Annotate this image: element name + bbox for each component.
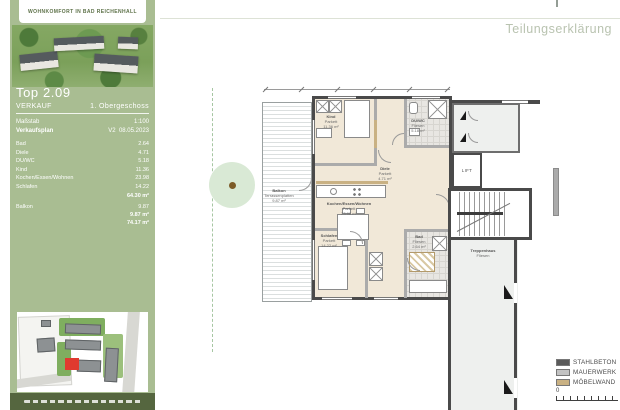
vestibule-area [452, 103, 520, 153]
door-gap [514, 283, 517, 303]
bed-symbol [318, 246, 348, 290]
floor-plan: Balkon Terrassenplatten 9.87 m² [0, 0, 620, 410]
wall-segment [315, 163, 377, 166]
staircase [448, 188, 532, 240]
scalebar-ruler [556, 396, 618, 401]
furniture-wall-segment [316, 181, 388, 184]
lift-label: LIFT [462, 168, 472, 173]
bathtub-symbol [409, 280, 447, 293]
door-swing [468, 133, 478, 143]
furniture-wall-segment [374, 120, 377, 148]
shower-symbol [428, 100, 447, 119]
legend-swatch-mauerwerk [556, 369, 570, 376]
lift-room: LIFT [452, 153, 482, 188]
door-leaf-symbol [460, 133, 466, 142]
wall-segment [404, 145, 449, 148]
legend-swatch-moebelwand [556, 379, 570, 386]
legend-swatch-stahlbeton [556, 359, 570, 366]
neighbor-wall-segment [553, 168, 559, 216]
legend-item-stahlbeton: STAHLBETON [556, 358, 620, 367]
property-boundary-dashed-line [212, 88, 213, 352]
desk-symbol [316, 128, 332, 138]
room-label-wohnen: Kochen/Essen/Wohnen Parkett 23.98 m² [326, 201, 372, 216]
wall-segment [448, 240, 451, 410]
room-label-duwc: DU/WC Fliesen 5.18 m² [406, 118, 430, 133]
room-label-diele: Diele Parkett 4.71 m² [372, 166, 398, 181]
room-label-schlafen: Schlafen Parkett 14.22 m² [312, 233, 346, 248]
wall-segment [404, 232, 407, 298]
tree-trunk-dot [229, 182, 236, 189]
wardrobe-symbol [369, 267, 383, 281]
washer-symbol [432, 236, 447, 251]
window [328, 96, 356, 99]
kitchen-counter-symbol [316, 185, 386, 198]
wardrobe-symbol [369, 252, 383, 266]
room-label-treppenhaus: Treppenhaus Fliesen [462, 248, 504, 258]
room-label-kind: Kind Parkett 11.36 m² [314, 114, 348, 129]
room-label-balkon: Balkon Terrassenplatten 9.87 m² [256, 188, 302, 203]
legend-item-moebelwand: MÖBELWAND [556, 378, 620, 387]
legend-item-mauerwerk: MAUERWERK [556, 368, 620, 377]
stair-handrail [457, 212, 503, 215]
dimension-line [264, 89, 450, 90]
window [374, 297, 398, 300]
wardrobe-symbol [316, 100, 329, 113]
wardrobe-symbol [329, 100, 342, 113]
kitchen-sink-symbol [330, 188, 337, 195]
window [412, 96, 440, 99]
door-swing [468, 111, 478, 121]
room-label-bad: Bad Fliesen 2.64 m² [408, 234, 430, 249]
scalebar-zero-label: 0 [556, 388, 559, 394]
stove-symbol [352, 187, 362, 197]
stairwell-corridor [448, 240, 518, 410]
window [322, 297, 352, 300]
door-leaf-symbol [460, 111, 466, 120]
wall-segment [404, 229, 449, 232]
door-gap [514, 378, 517, 398]
wc-symbol [409, 102, 418, 114]
